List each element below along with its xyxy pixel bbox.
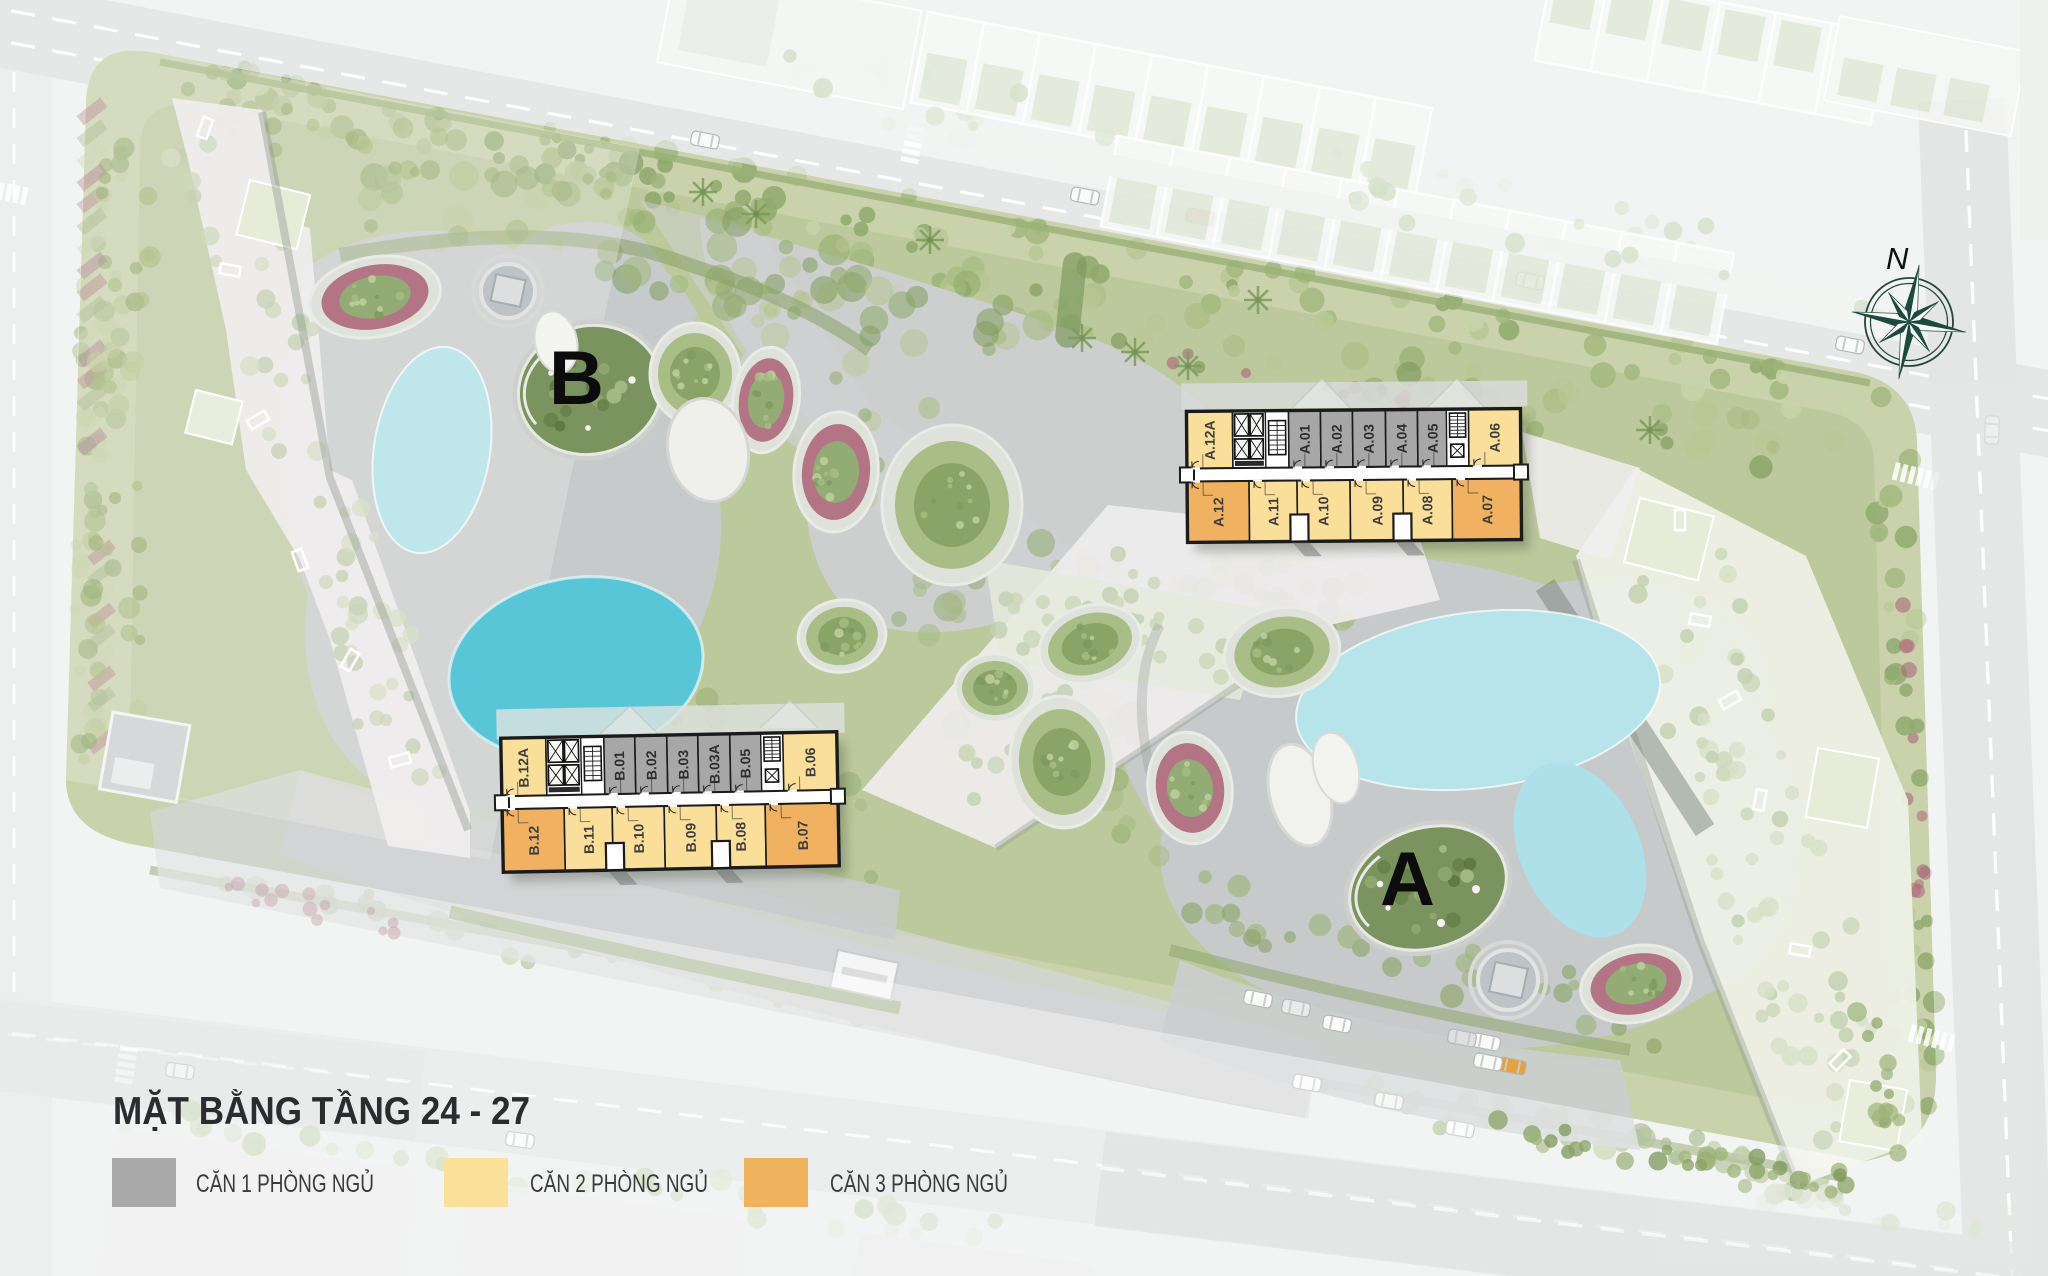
svg-text:B.08: B.08 [732,822,749,852]
svg-text:A.06: A.06 [1487,423,1503,453]
svg-text:B.03A: B.03A [706,744,723,784]
svg-text:CĂN 3 PHÒNG NGỦ: CĂN 3 PHÒNG NGỦ [830,1168,1008,1198]
svg-text:CĂN 1 PHÒNG NGỦ: CĂN 1 PHÒNG NGỦ [196,1168,374,1198]
svg-text:A.11: A.11 [1265,497,1281,526]
svg-text:A.07: A.07 [1479,495,1495,525]
svg-text:B.02: B.02 [643,750,660,780]
svg-text:B.12A: B.12A [515,748,532,788]
svg-text:B.05: B.05 [737,748,754,778]
svg-text:A.05: A.05 [1425,423,1441,453]
svg-text:A.12A: A.12A [1202,420,1218,460]
svg-text:N: N [1886,241,1909,276]
svg-text:B.12: B.12 [525,825,542,855]
svg-text:B.07: B.07 [794,820,811,850]
svg-text:B.01: B.01 [611,751,628,781]
svg-text:B.03: B.03 [675,750,692,780]
svg-text:MẶT BẰNG TẦNG 24 - 27: MẶT BẰNG TẦNG 24 - 27 [113,1089,530,1133]
svg-text:B.06: B.06 [802,747,819,777]
svg-text:A.02: A.02 [1329,424,1345,454]
svg-text:A.03: A.03 [1361,424,1377,454]
svg-text:A.09: A.09 [1369,496,1385,526]
svg-text:A.12: A.12 [1210,497,1226,527]
svg-text:CĂN 2 PHÒNG NGỦ: CĂN 2 PHÒNG NGỦ [530,1168,708,1198]
svg-text:B.11: B.11 [580,825,597,854]
svg-text:A: A [1380,837,1435,922]
svg-text:A.01: A.01 [1297,424,1313,454]
svg-text:B: B [549,336,604,421]
svg-text:B.09: B.09 [682,822,699,852]
svg-text:A.10: A.10 [1315,496,1331,526]
svg-text:B.10: B.10 [630,823,647,853]
svg-text:A.08: A.08 [1419,495,1435,525]
svg-text:A.04: A.04 [1394,424,1410,454]
